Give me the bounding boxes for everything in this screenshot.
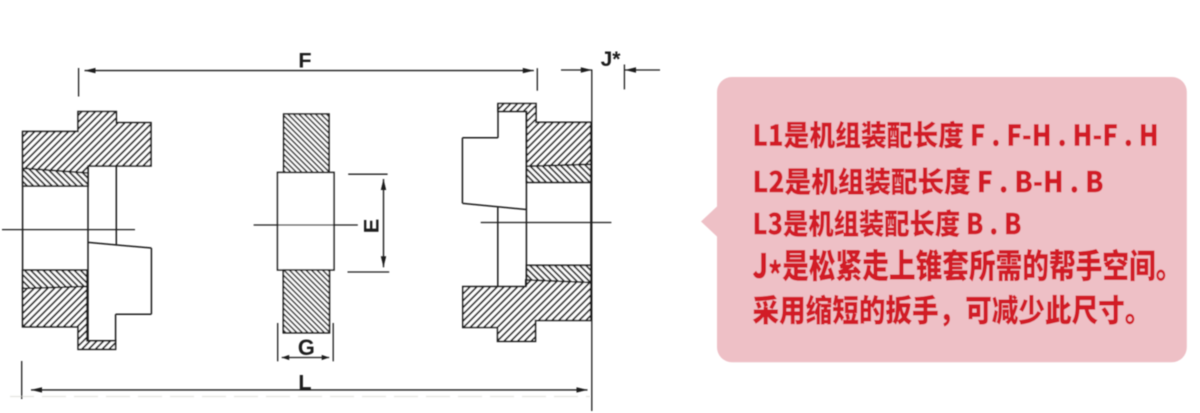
svg-text:J*: J* (601, 48, 622, 71)
svg-text:E: E (360, 219, 384, 233)
svg-text:F: F (298, 49, 311, 73)
svg-text:L: L (298, 371, 311, 395)
svg-text:G: G (298, 335, 315, 360)
